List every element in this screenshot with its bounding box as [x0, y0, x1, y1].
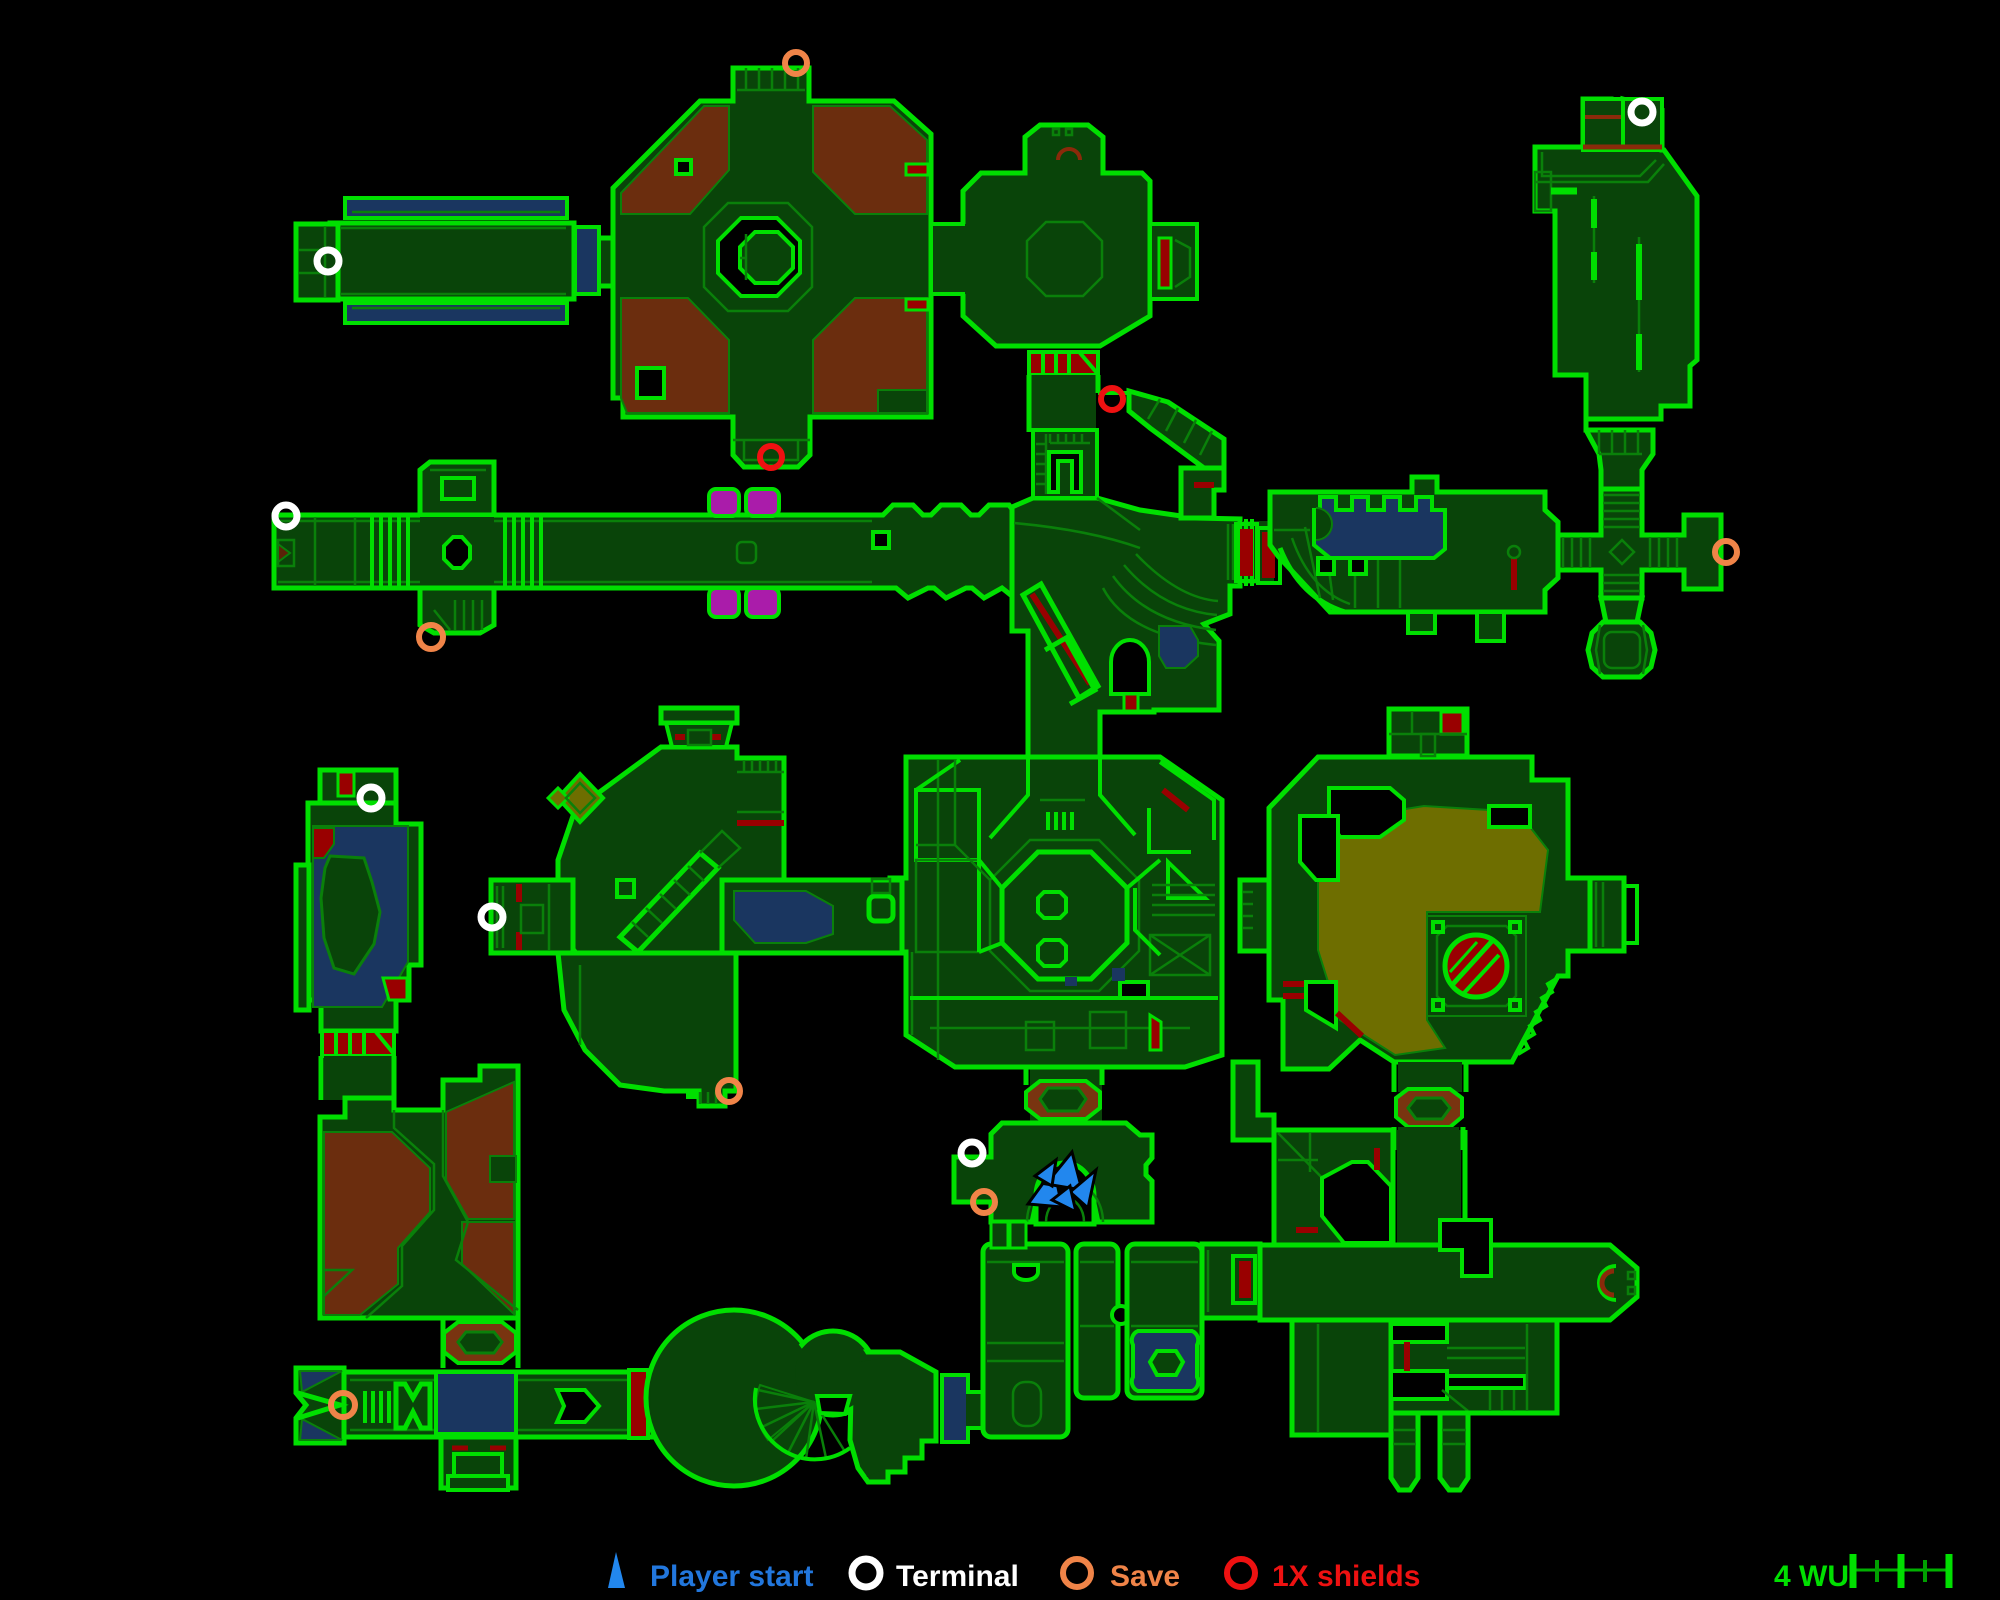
svg-text:Player start: Player start — [650, 1560, 813, 1593]
svg-text:Save: Save — [1110, 1560, 1180, 1593]
svg-text:1X shields: 1X shields — [1272, 1560, 1420, 1593]
svg-text:Terminal: Terminal — [896, 1560, 1019, 1593]
svg-text:4 WU: 4 WU — [1774, 1560, 1849, 1593]
